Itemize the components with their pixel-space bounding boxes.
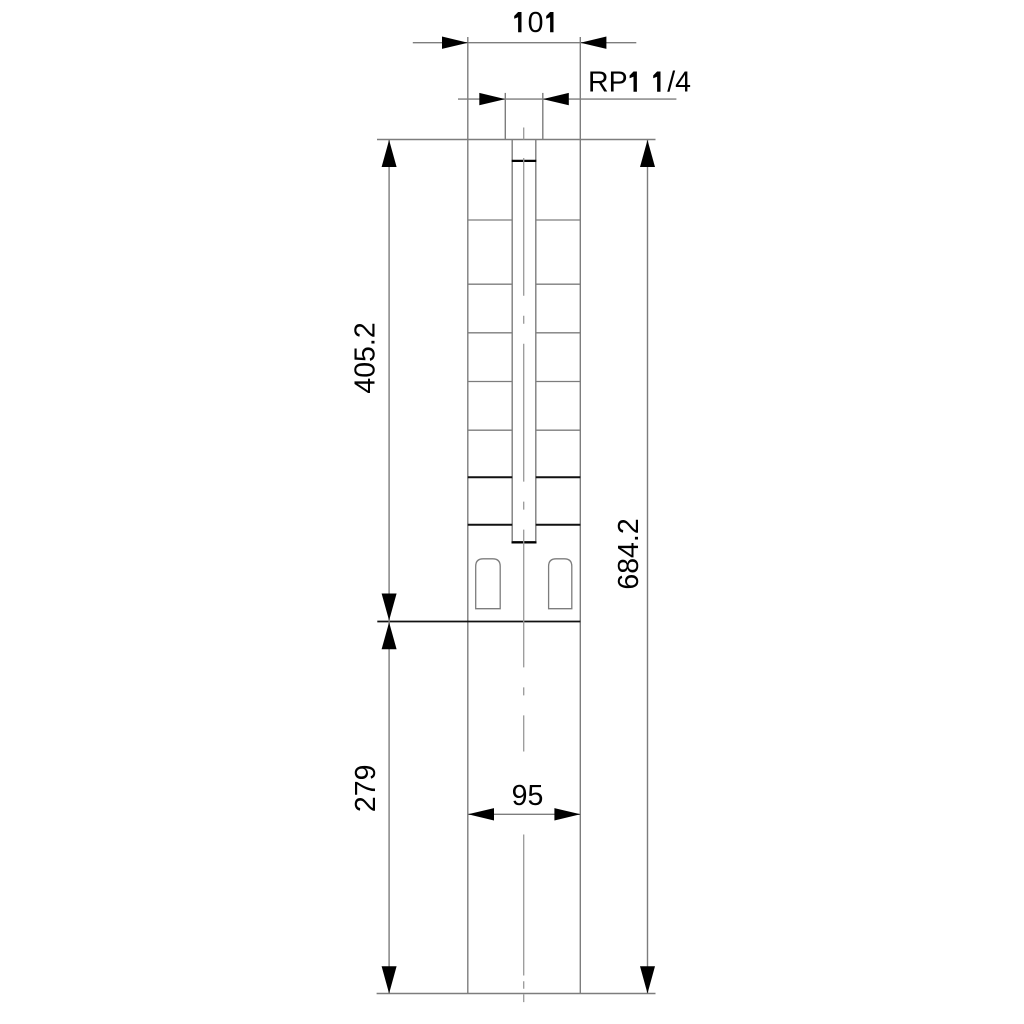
svg-text:684.2: 684.2 — [613, 518, 645, 589]
svg-text:405.2: 405.2 — [349, 322, 381, 393]
svg-text:279: 279 — [350, 765, 382, 813]
svg-text:RP1 1/4: RP1 1/4 — [588, 67, 691, 99]
svg-text:95: 95 — [512, 780, 544, 812]
